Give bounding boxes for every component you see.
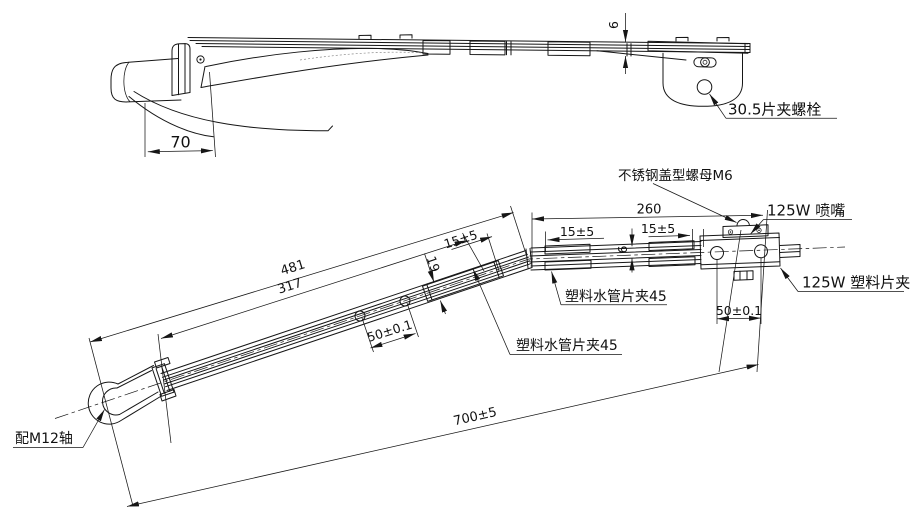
wiper-blade-side: [188, 35, 750, 56]
main-view: 700±5 481 317 50±0.1 19 15±5: [13, 168, 910, 507]
dim-text-15-3: 15±5: [641, 221, 675, 236]
dim-blade-thickness-6: 6: [606, 13, 626, 74]
label-nozzle: 125W 喷嘴: [751, 202, 853, 235]
dim-head-width-70: 70: [145, 72, 216, 157]
label-tube-clip-lower: 塑料水管片夹45: [473, 269, 622, 355]
dim-text-50-2: 50±0.1: [716, 303, 762, 318]
label-nozzle-text: 125W 喷嘴: [767, 202, 845, 220]
nozzle-clip-assembly: [700, 220, 780, 372]
drawing-canvas: 6 70 30.5片夹螺栓: [0, 0, 914, 521]
dim-overall-700: 700±5: [89, 210, 768, 507]
label-plastic-clip-text: 125W 塑料片夹: [802, 274, 910, 292]
dim-text-6-tube: 6: [615, 245, 630, 253]
arm-section-1: [161, 249, 532, 391]
arm-body-side: [201, 48, 428, 87]
label-tube-clip-upper: 塑料水管片夹45: [552, 272, 668, 306]
dim-text-260: 260: [637, 203, 662, 218]
dim-text-6-top: 6: [606, 21, 621, 29]
hook-end: [88, 358, 176, 425]
dim-481: 481: [90, 206, 527, 342]
label-cap-nut-text: 不锈钢盖型螺母M6: [618, 168, 733, 184]
label-tube-clip-upper-text: 塑料水管片夹45: [565, 289, 667, 305]
dim-15-1: 15±5: [442, 227, 499, 271]
top-view: 6 70 30.5片夹螺栓: [111, 13, 837, 157]
label-clip-bolt: 30.5片夹螺栓: [710, 94, 838, 119]
dim-text-15-2: 15±5: [560, 224, 594, 239]
cap-nut-dome: [737, 220, 749, 226]
dim-text-19: 19: [424, 254, 443, 274]
label-clip-bolt-text: 30.5片夹螺栓: [728, 101, 821, 119]
label-shaft-text: 配M12轴: [15, 431, 73, 447]
dim-text-15-1: 15±5: [442, 227, 479, 252]
clip-hole-1: [711, 247, 724, 260]
label-tube-clip-lower-text: 塑料水管片夹45: [516, 338, 618, 354]
dim-260: 260: [532, 203, 763, 220]
lower-nut: [734, 271, 753, 280]
clip-bolt-hole: [697, 80, 712, 95]
arm-head-side: [111, 44, 333, 137]
technical-drawing: 6 70 30.5片夹螺栓: [0, 0, 914, 521]
dim-text-700: 700±5: [452, 405, 498, 429]
dim-text-70: 70: [170, 132, 190, 151]
label-shaft: 配M12轴: [13, 410, 105, 448]
clip-hole-2: [755, 245, 768, 258]
label-plastic-clip: 125W 塑料片夹: [781, 268, 911, 292]
dim-text-481: 481: [279, 257, 307, 279]
